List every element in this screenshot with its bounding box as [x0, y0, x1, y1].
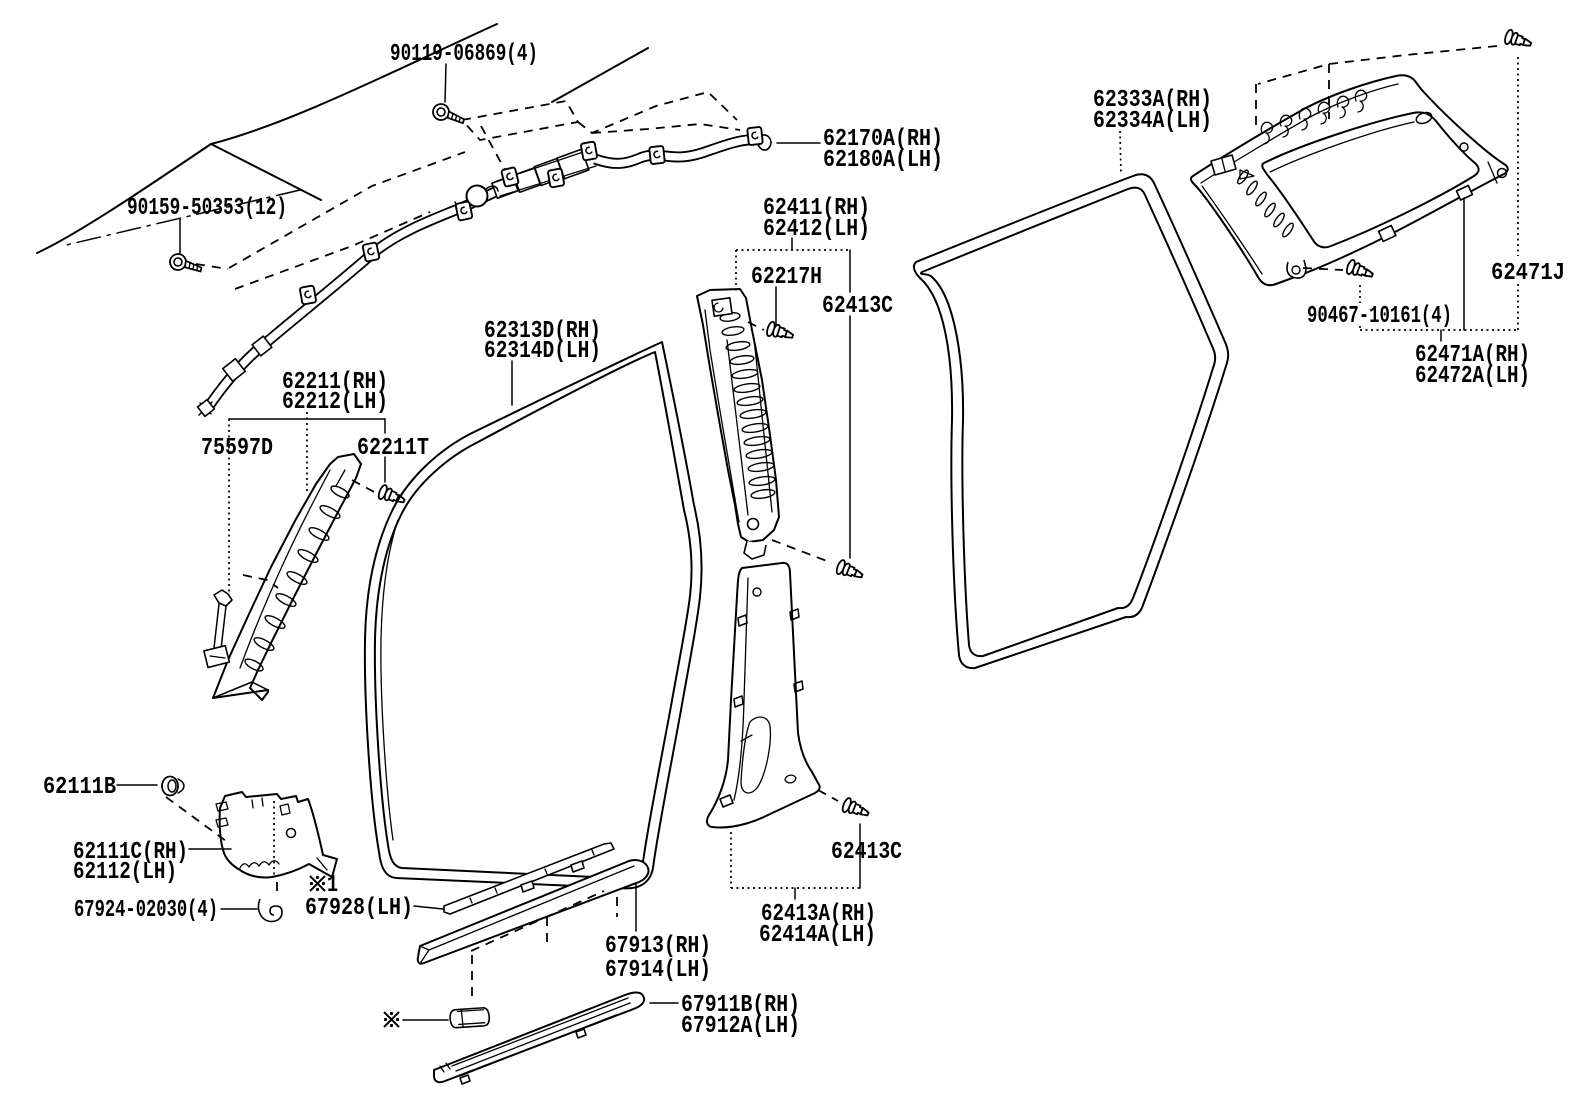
- svg-text:90467-10161(4): 90467-10161(4): [1307, 303, 1452, 330]
- svg-text:62212(LH): 62212(LH): [282, 389, 388, 416]
- svg-text:62412(LH): 62412(LH): [763, 216, 870, 243]
- svg-text:62111B: 62111B: [43, 774, 116, 801]
- svg-text:62413C: 62413C: [831, 839, 902, 866]
- svg-text:90159-50353(12): 90159-50353(12): [127, 195, 287, 222]
- svg-text:62471J: 62471J: [1491, 260, 1565, 287]
- svg-text:62180A(LH): 62180A(LH): [823, 147, 943, 174]
- svg-text:67924-02030(4): 67924-02030(4): [74, 897, 218, 924]
- svg-text:62334A(LH): 62334A(LH): [1093, 108, 1212, 135]
- svg-text:62413C: 62413C: [822, 293, 893, 320]
- svg-text:75597D: 75597D: [201, 435, 273, 462]
- svg-text:62414A(LH): 62414A(LH): [759, 922, 876, 949]
- svg-text:62211T: 62211T: [357, 435, 429, 462]
- svg-text:67914(LH): 67914(LH): [605, 957, 711, 984]
- svg-text:67912A(LH): 67912A(LH): [681, 1013, 800, 1040]
- svg-text:62217H: 62217H: [751, 264, 822, 291]
- svg-text:67928(LH): 67928(LH): [305, 895, 413, 922]
- svg-text:62314D(LH): 62314D(LH): [484, 338, 601, 365]
- svg-text:62112(LH): 62112(LH): [73, 859, 177, 886]
- svg-text:90119-06869(4): 90119-06869(4): [390, 41, 538, 68]
- svg-text:67913(RH): 67913(RH): [605, 933, 711, 960]
- svg-text:62472A(LH): 62472A(LH): [1415, 363, 1530, 390]
